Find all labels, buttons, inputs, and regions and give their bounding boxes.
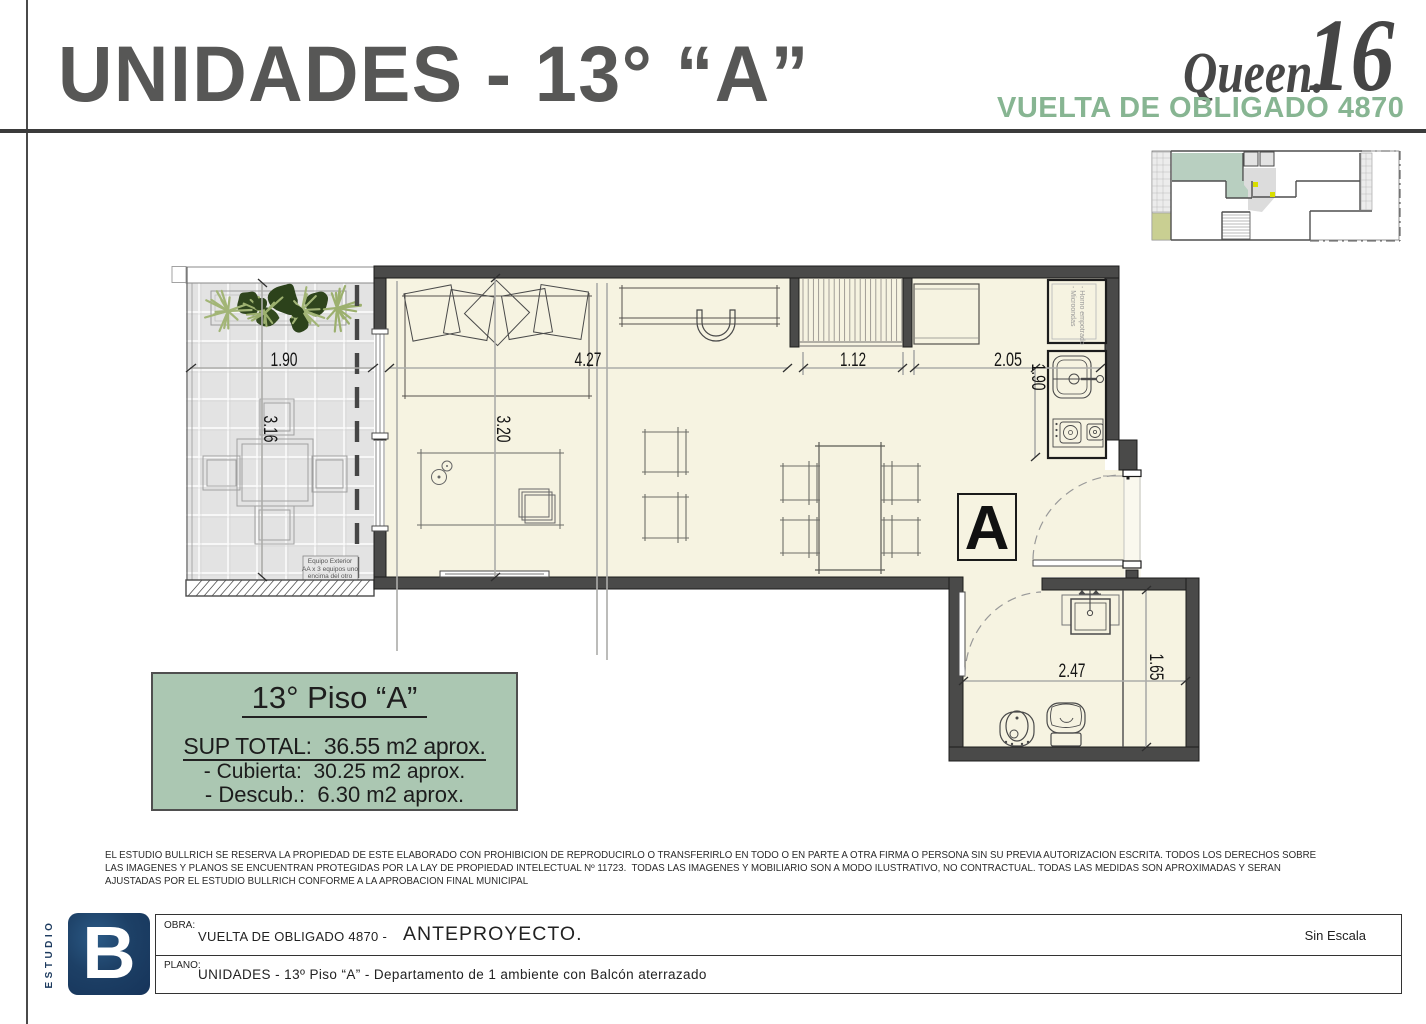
- svg-text:- Horno empotrado: - Horno empotrado: [1078, 286, 1085, 345]
- svg-text:2.05: 2.05: [994, 349, 1022, 371]
- svg-text:Equipo Exterior: Equipo Exterior: [308, 558, 353, 565]
- svg-text:encima del otro: encima del otro: [308, 573, 353, 580]
- svg-text:1.65: 1.65: [1145, 654, 1167, 681]
- svg-text:1.90: 1.90: [271, 349, 298, 371]
- svg-text:1.90: 1.90: [1027, 364, 1049, 391]
- svg-text:2.47: 2.47: [1059, 660, 1086, 682]
- svg-text:AA x 3 equipos uno: AA x 3 equipos uno: [302, 566, 358, 573]
- svg-text:4.27: 4.27: [575, 349, 602, 371]
- svg-text:3.20: 3.20: [492, 416, 514, 443]
- svg-text:3.16: 3.16: [259, 416, 281, 443]
- svg-text:A: A: [965, 494, 1010, 563]
- svg-text:- Microondas: - Microondas: [1069, 286, 1076, 327]
- svg-text:1.12: 1.12: [840, 349, 866, 371]
